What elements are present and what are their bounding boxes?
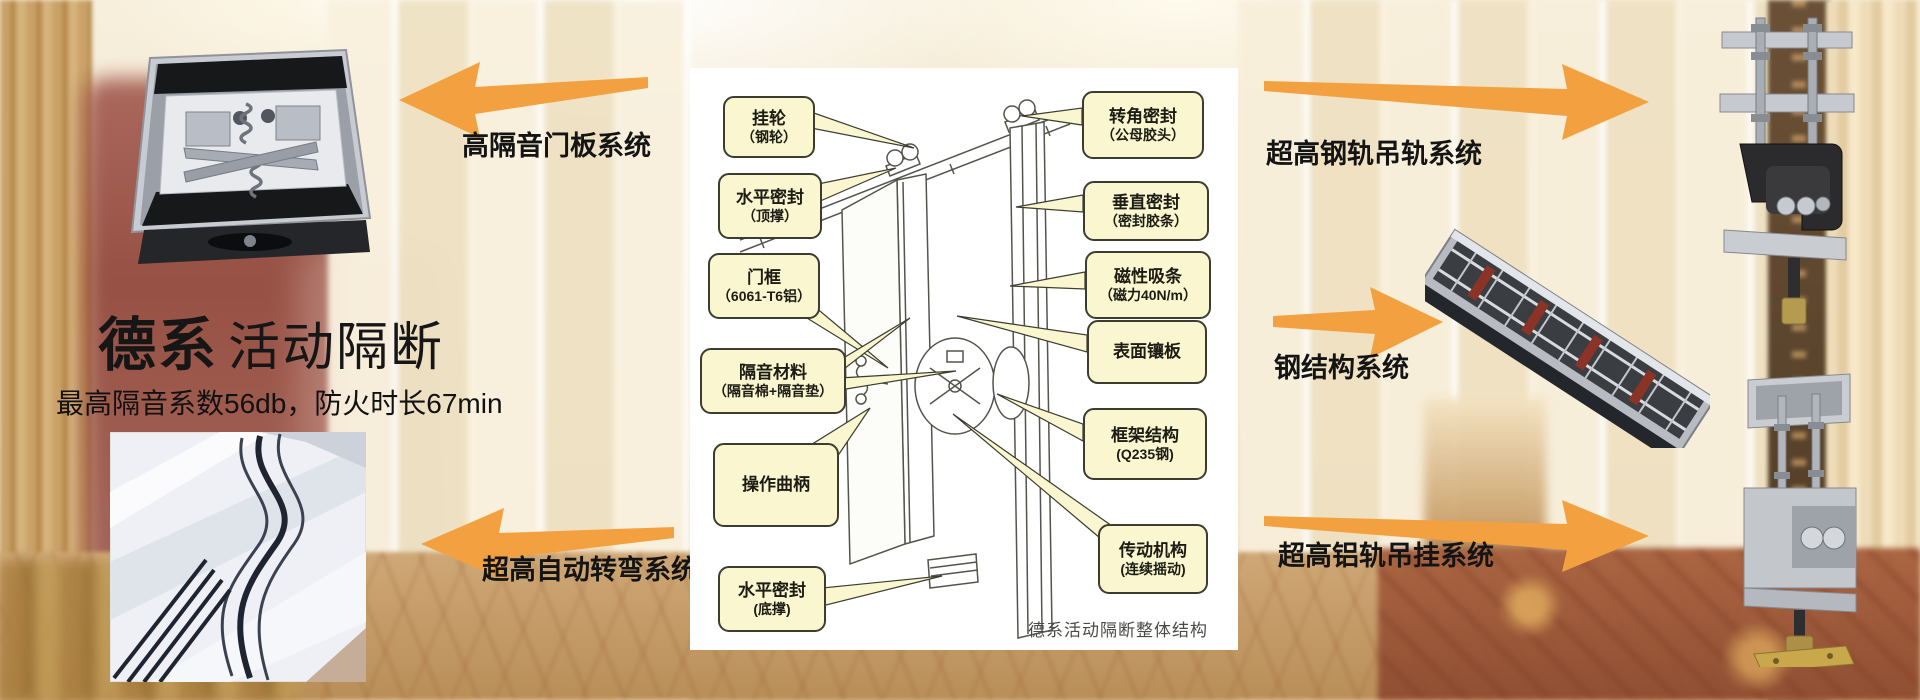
diagram-caption: 德系活动隔断整体结构 [1028,616,1233,641]
callout-vertical-seal: 垂直密封 （密封胶条） [1083,181,1209,241]
callout-transmission-mechanism: 传动机构 (连续摇动) [1098,524,1208,594]
steel-structure-frame-photo [1425,228,1710,448]
steel-rail-hanger-illustration [1710,6,1865,326]
door-panel-top-mechanism-photo [120,40,375,280]
curved-track-illustration [110,432,366,682]
alu-rail-hanger-photo [1734,372,1869,667]
curved-track-photo [110,432,366,682]
callout-surface-panel: 表面镶板 [1087,320,1207,384]
label-alu-rail-system: 超高铝轨吊挂系统 [1278,534,1494,573]
door-panel-top-mechanism-illustration [120,40,375,280]
alu-rail-hanger-illustration [1734,372,1869,667]
page-title-product: 活动隔断 [228,319,444,377]
callout-operating-crank: 操作曲柄 [713,443,839,527]
steel-structure-frame-illustration [1425,228,1710,448]
callout-corner-seal: 转角密封 （公母胶头） [1082,91,1204,159]
callout-door-frame: 门框 （6061-T6铝） [708,253,820,319]
left-wood-column-background [0,0,92,700]
callout-horizontal-seal-top: 水平密封 （顶撑） [718,173,822,239]
label-steel-rail-system: 超高钢轨吊轨系统 [1266,132,1482,171]
steel-rail-hanger-photo [1710,6,1865,326]
callout-magnetic-strip: 磁性吸条 （磁力40N/m） [1085,251,1211,319]
callout-acoustic-material: 隔音材料 （隔音棉+隔音垫） [700,348,846,414]
page-subtitle: 最高隔音系数56db，防火时长67min [56,382,503,422]
label-auto-turn-system: 超高自动转弯系统 [482,548,698,587]
label-steel-structure-system: 钢结构系统 [1274,346,1409,385]
callout-horizontal-seal-bottom: 水平密封 (底撑) [718,566,826,632]
slide-movable-partition-overview: 德系活动隔断 最高隔音系数56db，防火时长67min 高隔音门板系统 [0,0,1920,700]
callout-hanging-wheel: 挂轮 （钢轮） [723,96,815,158]
callout-frame-structure: 框架结构 (Q235钢) [1083,408,1207,480]
partition-structure-diagram: 挂轮 （钢轮） 水平密封 （顶撑） 门框 （6061-T6铝） 隔音材料 （隔音… [690,68,1238,650]
label-door-panel-system: 高隔音门板系统 [462,124,651,163]
page-title-brand: 德系 [98,313,218,378]
page-title: 德系活动隔断 [98,298,444,382]
